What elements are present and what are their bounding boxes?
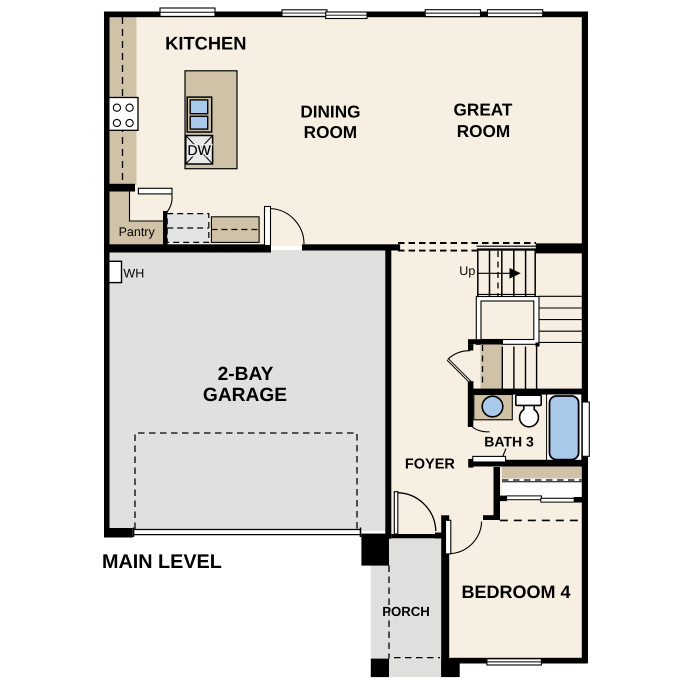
- svg-text:ROOM: ROOM: [304, 122, 357, 142]
- svg-text:Pantry: Pantry: [119, 225, 156, 239]
- svg-text:WH: WH: [123, 267, 144, 281]
- svg-text:KITCHEN: KITCHEN: [165, 33, 246, 54]
- svg-text:PORCH: PORCH: [382, 604, 430, 619]
- svg-text:Up: Up: [459, 264, 475, 278]
- svg-text:ROOM: ROOM: [457, 121, 510, 141]
- svg-text:MAIN LEVEL: MAIN LEVEL: [102, 551, 222, 573]
- svg-text:BEDROOM 4: BEDROOM 4: [461, 582, 570, 602]
- svg-text:2-BAY: 2-BAY: [218, 364, 274, 385]
- svg-text:GARAGE: GARAGE: [203, 385, 287, 406]
- svg-text:GREAT: GREAT: [454, 100, 513, 120]
- svg-text:DW: DW: [188, 142, 212, 158]
- svg-text:BATH 3: BATH 3: [484, 433, 534, 449]
- svg-text:FOYER: FOYER: [405, 456, 455, 472]
- svg-text:DINING: DINING: [300, 102, 360, 122]
